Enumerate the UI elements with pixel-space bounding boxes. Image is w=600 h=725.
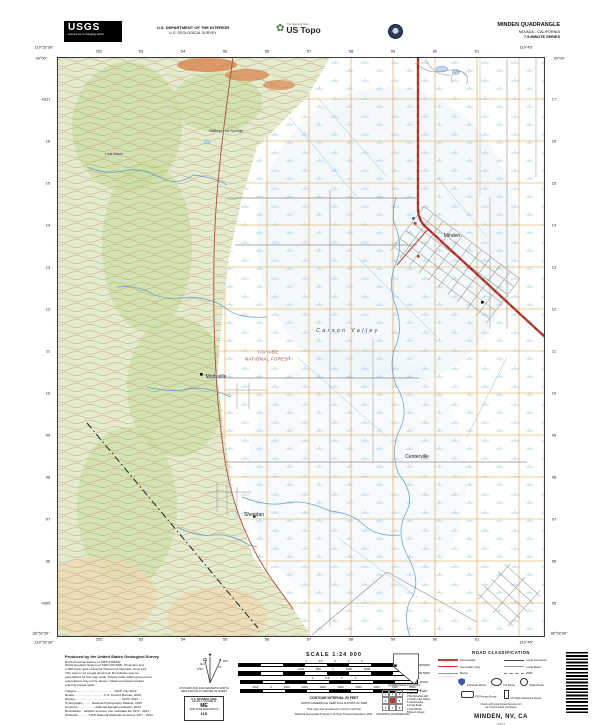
map-label: 56 [265, 637, 269, 642]
department-line2: U.S. GEOLOGICAL SURVEY [128, 31, 258, 35]
us-topo-map-sheet: USGS science for a changing world U.S. D… [0, 0, 600, 725]
map-label: 119°45' [519, 640, 532, 645]
us-route-oval-icon [491, 678, 502, 686]
map-label: 55 [223, 637, 227, 642]
legend-expressway: Expressway [438, 658, 504, 662]
legend-note-line2: for current travel conditions [438, 706, 564, 709]
us-topo-logo: ✿ The National Map US Topo [276, 23, 321, 34]
map-label: 16 [552, 139, 556, 144]
map-label: 38°52'30" [550, 631, 567, 636]
map-label: 53 [139, 49, 143, 54]
map-label: 05 [552, 601, 556, 606]
map-label: 252 [96, 49, 103, 54]
scale-bar [238, 663, 410, 667]
map-label: 14 [552, 223, 556, 228]
map-label: 119°52'30" [34, 45, 53, 50]
state-locator-map [392, 653, 420, 685]
adjoining-quad-cell: 8 [396, 704, 403, 711]
map-label: 58 [349, 49, 353, 54]
quadrangle-heading: MINDEN QUADRANGLE NEVADA - CALIFORNIA 7.… [497, 22, 560, 39]
usng-box: U.S. NATIONAL GRID 100,000-m SQUARE ID M… [184, 696, 224, 721]
map-label: 06 [46, 559, 50, 564]
map-label: 13 [552, 265, 556, 270]
usgs-logo: USGS science for a changing world [64, 21, 122, 42]
map-label: 11 [552, 349, 556, 354]
legend-state-route: State Route [520, 678, 544, 687]
map-label: 39°00' [553, 56, 564, 61]
map-label: 57 [307, 637, 311, 642]
quadrangle-states: NEVADA - CALIFORNIA [497, 30, 560, 34]
legend-secondary-hwy: Secondary Hwy [438, 665, 504, 669]
adjoining-quad-cell: 4 [382, 697, 389, 704]
map-art [57, 57, 545, 637]
adjoining-quad-cell: 6 [382, 704, 389, 711]
map-label: 16 [46, 139, 50, 144]
map-label: 38°52'30" [32, 631, 49, 636]
legend-local-connector: Local Connector [504, 658, 564, 662]
map-label: 12 [552, 307, 556, 312]
svg-text:13°: 13° [218, 665, 222, 669]
map-label: 11 [46, 349, 50, 354]
map-label: 09 [46, 433, 50, 438]
map-label: 10 [552, 391, 556, 396]
legend-interstate: Interstate Route [458, 678, 486, 687]
road-classification-legend: ROAD CLASSIFICATION Expressway Local Con… [438, 650, 564, 725]
ramp-line-icon [438, 673, 458, 674]
declination-caption: UTM GRID AND 2021 MAGNETIC NORTH DECLINA… [172, 687, 236, 693]
expressway-line-icon [438, 659, 458, 661]
legend-4wd: 4WD [504, 671, 564, 675]
map-label: 60 [433, 637, 437, 642]
state-locator-caption: QUADRANGLE LOCATION [378, 684, 430, 687]
adjoining-quad-cell: 5 [396, 697, 403, 704]
adjoining-quads-names: 1 Glenbrook2 Genoa3 McTarnahan Hill4 Sou… [407, 689, 430, 714]
map-label: 08 [46, 475, 50, 480]
usng-zone: 11S [185, 712, 223, 717]
usgs-logo-tagline: science for a changing world [68, 33, 118, 36]
sheet-name: MINDEN, NV, CA [438, 714, 564, 720]
map-label: 08 [552, 475, 556, 480]
adjoining-quad-cell [389, 697, 396, 704]
us-topo-flower-icon: ✿ [276, 24, 284, 34]
adjoining-quad-cell: 1 [382, 690, 389, 697]
map-label: 252 [96, 637, 103, 642]
map-label: 54 [181, 637, 185, 642]
svg-text:★: ★ [208, 652, 213, 657]
adjoining-quads-caption: ADJOINING QUADRANGLES [370, 713, 416, 716]
map-label: 59 [391, 49, 395, 54]
local-connector-line-icon [504, 660, 524, 661]
map-label: 07 [552, 517, 556, 522]
map-label: 59 [391, 637, 395, 642]
map-label: 4305 [42, 601, 51, 606]
map-label: 13 [46, 265, 50, 270]
4wd-line-icon [504, 673, 524, 674]
interior-department-seal-icon [388, 24, 403, 39]
adjoining-quad-cell: 3 [396, 690, 403, 697]
department-line1: U.S. DEPARTMENT OF THE INTERIOR [128, 25, 258, 30]
declination-diagram: ★ GN 0°52' MN 13° [188, 651, 232, 687]
quad-location-marker [394, 664, 397, 667]
map-label: 55 [223, 49, 227, 54]
state-route-circle-icon [520, 678, 528, 686]
map-label: 54 [181, 49, 185, 54]
adjoining-quad-cell: 7 [389, 704, 396, 711]
map-label: 39°00' [35, 56, 46, 61]
road-classification-title: ROAD CLASSIFICATION [438, 650, 564, 655]
map-label: 58 [349, 637, 353, 642]
quadrangle-title: MINDEN QUADRANGLE [497, 22, 560, 28]
map-label: 61 [475, 637, 479, 642]
adjoining-quads-grid: 12345678 [382, 690, 403, 711]
map-label: 10 [46, 391, 50, 396]
secondary-hwy-line-icon [438, 666, 458, 667]
map-label: 07 [46, 517, 50, 522]
fs-primary-icon [461, 691, 474, 698]
map-label: 60 [433, 49, 437, 54]
svg-text:MN: MN [223, 659, 228, 663]
barcode [566, 652, 588, 714]
map-label: 57 [307, 49, 311, 54]
map-label: 06 [552, 559, 556, 564]
map-label: 15 [552, 181, 556, 186]
map-label: 09 [552, 433, 556, 438]
map-label: 14 [46, 223, 50, 228]
department-heading: U.S. DEPARTMENT OF THE INTERIOR U.S. GEO… [128, 25, 258, 35]
legend-us-route: US Route [491, 678, 515, 687]
interstate-shield-icon [458, 678, 465, 686]
legend-fs-high-clearance: FS High Clearance Route [504, 690, 542, 700]
adjoining-quad-cell: 2 [389, 690, 396, 697]
quadrangle-series: 7.5-MINUTE SERIES [497, 35, 560, 39]
map-label: 4317 [42, 97, 51, 102]
legend-fs-primary: FS Primary Route [461, 691, 497, 699]
map-label: 61 [475, 49, 479, 54]
local-road-line-icon [504, 666, 524, 667]
svg-text:0°52': 0°52' [197, 667, 204, 671]
map-label: 17 [552, 97, 556, 102]
legend-local-road: Local Road [504, 665, 564, 669]
map-label: 119°52'30" [34, 640, 53, 645]
us-topo-wordmark: US Topo [286, 26, 320, 34]
fs-high-clearance-icon [504, 690, 510, 699]
map-label: 15 [46, 181, 50, 186]
map-label: 53 [139, 637, 143, 642]
map-area [57, 57, 545, 637]
scale-bar [238, 671, 416, 675]
declination-caption-line2: DECLINATION AT CENTER OF SHEET [172, 690, 236, 693]
map-label: 12 [46, 307, 50, 312]
map-label: 56 [265, 49, 269, 54]
map-label: 119°45' [519, 45, 532, 50]
legend-ramp: Ramp [438, 671, 504, 675]
svg-text:GN: GN [200, 662, 205, 666]
